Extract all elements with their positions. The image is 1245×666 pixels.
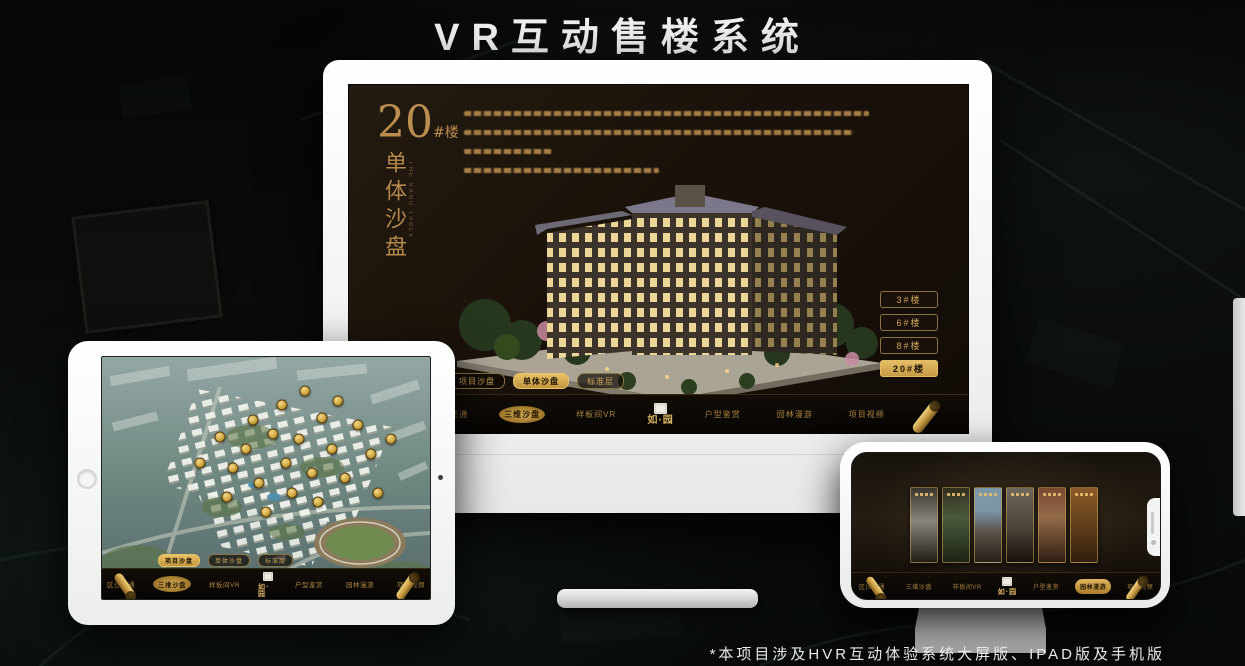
nav-item-样板间VR[interactable]: 样板间VR <box>948 579 987 594</box>
floor-button-group: 3#楼6#楼8#楼20#楼 <box>880 291 938 377</box>
nav-item-三维沙盘[interactable]: 三维沙盘 <box>499 406 545 423</box>
tablet-tab-group: 项目沙盘单体沙盘标准层 <box>158 554 293 567</box>
brand-seal-icon <box>654 403 667 414</box>
tablet-mockup: 项目沙盘单体沙盘标准层 区位交通三维沙盘样板间VR如·园户型鉴赏园林漫游项目视频 <box>68 341 455 625</box>
ink-courtyard-scene[interactable] <box>910 487 938 563</box>
building-marker[interactable] <box>385 434 396 445</box>
nav-item-户型鉴赏[interactable]: 户型鉴赏 <box>1028 579 1064 594</box>
footer-note: *本项目涉及HVR互动体验系统大屏版、IPAD版及手机版 <box>710 643 1165 664</box>
tab-标准层[interactable]: 标准层 <box>258 554 293 567</box>
background-picture-frame <box>71 200 222 334</box>
page-title: VR互动售楼系统 <box>0 6 1245 61</box>
nav-item-三维沙盘[interactable]: 三维沙盘 <box>901 579 937 594</box>
tab-单体沙盘[interactable]: 单体沙盘 <box>208 554 250 567</box>
green-garden-scene[interactable] <box>942 487 970 563</box>
description-text-line <box>464 111 869 116</box>
phone-mockup: 区位交通三维沙盘样板间VR如·园户型鉴赏园林漫游项目视频 <box>840 442 1170 608</box>
background-card-edge <box>1233 298 1245 516</box>
brand-logo[interactable]: 如·园 <box>258 572 277 597</box>
tablet-screen: 项目沙盘单体沙盘标准层 区位交通三维沙盘样板间VR如·园户型鉴赏园林漫游项目视频 <box>101 356 431 600</box>
building-marker[interactable] <box>241 443 252 454</box>
tab-标准层[interactable]: 标准层 <box>577 373 624 389</box>
tablet-navbar: 区位交通三维沙盘样板间VR如·园户型鉴赏园林漫游项目视频 <box>102 568 430 599</box>
nav-item-三维沙盘[interactable]: 三维沙盘 <box>153 576 191 592</box>
home-button[interactable] <box>77 469 97 489</box>
building-marker[interactable] <box>247 414 258 425</box>
building-marker[interactable] <box>254 477 265 488</box>
building-marker[interactable] <box>339 473 350 484</box>
building-marker[interactable] <box>372 487 383 498</box>
building-marker[interactable] <box>326 443 337 454</box>
floor-button-8#楼[interactable]: 8#楼 <box>880 337 938 354</box>
brand-logo-text: 如·园 <box>998 588 1017 595</box>
building-title-vertical: 单体沙盘 <box>377 151 409 263</box>
nav-item-园林漫游[interactable]: 园林漫游 <box>341 576 379 592</box>
brand-logo[interactable]: 如·园 <box>647 403 673 426</box>
nav-item-园林漫游[interactable]: 园林漫游 <box>772 406 818 423</box>
building-marker[interactable] <box>261 506 272 517</box>
tab-单体沙盘[interactable]: 单体沙盘 <box>513 373 569 389</box>
warm-interior-scene[interactable] <box>1070 487 1098 563</box>
building-number-suffix: #楼 <box>433 125 459 141</box>
nav-item-样板间VR[interactable]: 样板间VR <box>571 406 621 423</box>
floor-button-20#楼[interactable]: 20#楼 <box>880 360 938 377</box>
tab-项目沙盘[interactable]: 项目沙盘 <box>449 373 505 389</box>
scene-panel-row <box>910 487 1098 563</box>
description-text-line <box>464 130 854 135</box>
building-sky-scene[interactable] <box>974 487 1002 563</box>
floor-button-3#楼[interactable]: 3#楼 <box>880 291 938 308</box>
phone-notch <box>1147 498 1161 556</box>
nav-item-项目视频[interactable]: 项目视频 <box>844 406 890 423</box>
building-marker[interactable] <box>333 395 344 406</box>
brand-logo-text: 如·园 <box>258 583 277 597</box>
building-marker[interactable] <box>280 458 291 469</box>
floor-button-6#楼[interactable]: 6#楼 <box>880 314 938 331</box>
building-marker[interactable] <box>195 458 206 469</box>
building-marker[interactable] <box>287 487 298 498</box>
nav-item-园林漫游[interactable]: 园林漫游 <box>1075 579 1111 594</box>
building-marker[interactable] <box>221 492 232 503</box>
building-marker[interactable] <box>300 385 311 396</box>
building-number: 20 <box>377 97 433 148</box>
nav-item-样板间VR[interactable]: 样板间VR <box>204 576 245 592</box>
residential-tower-scene[interactable] <box>1006 487 1034 563</box>
phone-navbar: 区位交通三维沙盘样板间VR如·园户型鉴赏园林漫游项目视频 <box>852 572 1160 599</box>
building-marker[interactable] <box>316 412 327 423</box>
nav-item-户型鉴赏[interactable]: 户型鉴赏 <box>700 406 746 423</box>
brand-seal-icon <box>1002 577 1012 586</box>
building-marker[interactable] <box>277 400 288 411</box>
building-marker[interactable] <box>293 434 304 445</box>
building-marker[interactable] <box>267 429 278 440</box>
building-marker[interactable] <box>215 431 226 442</box>
phone-screen: 区位交通三维沙盘样板间VR如·园户型鉴赏园林漫游项目视频 <box>851 452 1161 600</box>
building-marker[interactable] <box>352 419 363 430</box>
description-text-line <box>464 149 552 154</box>
brand-seal-icon <box>263 572 273 581</box>
building-marker[interactable] <box>365 448 376 459</box>
autumn-court-scene[interactable] <box>1038 487 1066 563</box>
tab-项目沙盘[interactable]: 项目沙盘 <box>158 554 200 567</box>
building-model-image <box>427 155 897 405</box>
camera-icon <box>438 475 443 480</box>
building-marker[interactable] <box>228 463 239 474</box>
building-title-caption: THE SAND TABLE <box>407 161 413 239</box>
brand-logo-text: 如·园 <box>647 416 673 426</box>
speaker-icon <box>1151 512 1154 534</box>
monitor-base <box>557 589 758 608</box>
brand-logo[interactable]: 如·园 <box>998 577 1017 595</box>
building-marker[interactable] <box>306 468 317 479</box>
camera-icon <box>1151 540 1156 545</box>
monitor-tab-group: 项目沙盘单体沙盘标准层 <box>449 373 624 389</box>
building-marker[interactable] <box>313 497 324 508</box>
nav-item-户型鉴赏[interactable]: 户型鉴赏 <box>290 576 328 592</box>
